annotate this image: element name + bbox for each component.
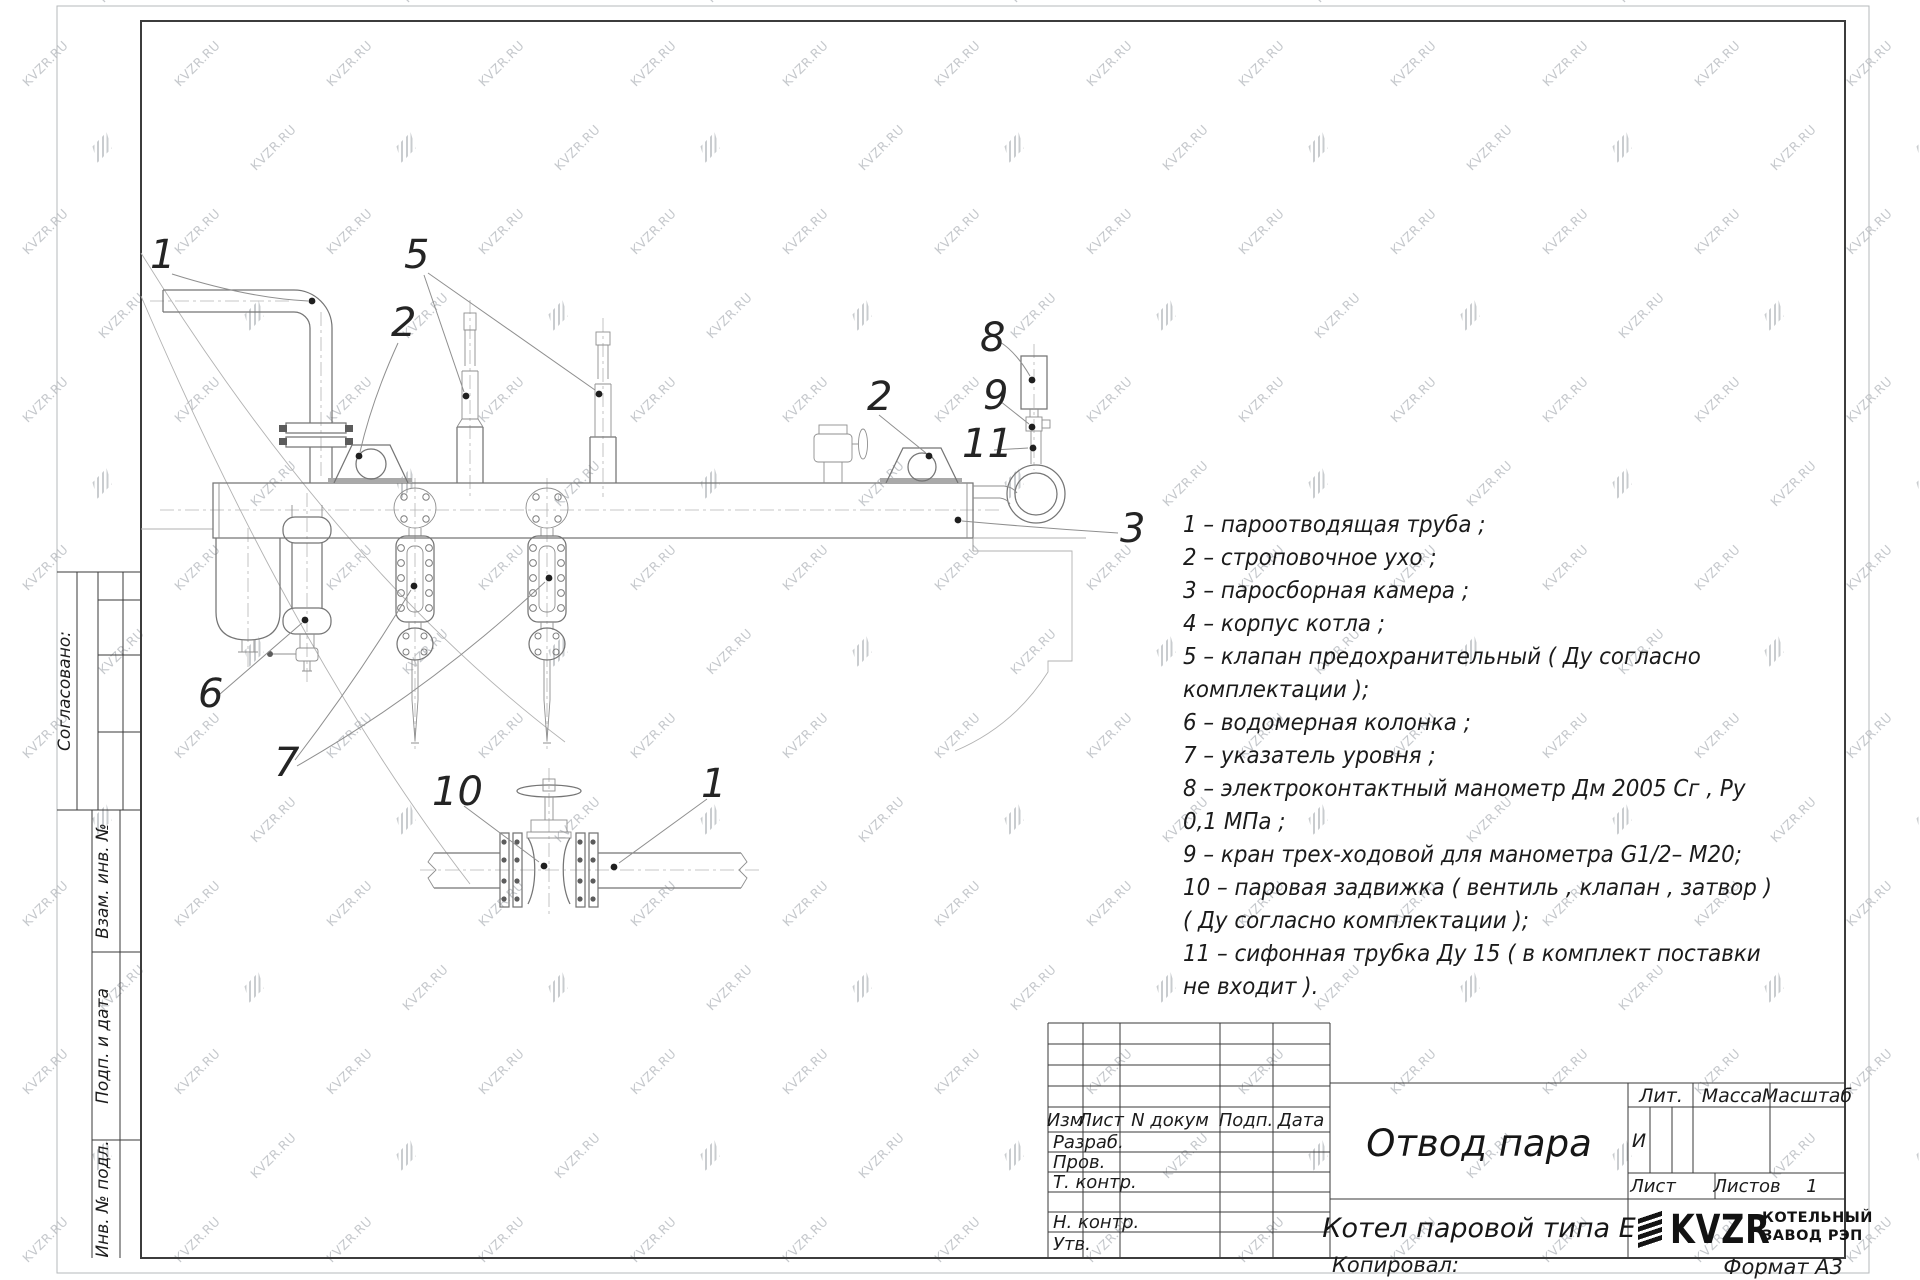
callout-water-column: 6 [198,671,223,717]
callout-pipe-bottom: 1 [701,761,726,807]
callout-gauge: 8 [980,315,1005,361]
parts-list-line: 3 – паросборная камера ; [1183,575,1772,608]
parts-list-line: не входит ). [1183,971,1772,1004]
boiler-shell-outline [955,538,1086,751]
rev-header-ndoc: N докум [1131,1110,1209,1131]
left-strip: Согласовано: Взам. инв. № Подп. и дата И… [55,572,141,1258]
construction-arcs [141,253,565,884]
format-label: Формат А3 [1723,1255,1843,1279]
parts-list-line: 11 – сифонная трубка Ду 15 ( в комплект … [1183,938,1772,971]
rev-header-podp: Подп. [1219,1110,1273,1131]
kvzr-logo-line2: ЗАВОД РЭП [1762,1228,1863,1244]
sheet-label: Лист [1629,1176,1676,1197]
parts-list-line: 9 – кран трех-ходовой для манометра G1/2… [1183,839,1772,872]
callout-safety-valve: 5 [404,232,429,278]
parts-list-line: 6 – водомерная колонка ; [1183,707,1772,740]
parts-list-line: комплектации ); [1183,674,1772,707]
callout-lug-left: 2 [391,300,416,346]
callout-level-indicator: 7 [274,740,300,786]
sheets-label: Листов [1712,1176,1780,1197]
drawing-subtitle: Котел паровой типа Е [1322,1213,1635,1244]
left-strip-label-inv: Инв. № подл. [93,1140,113,1257]
copied-label: Копировал: [1332,1253,1459,1277]
left-strip-label-agreed: Согласовано: [55,631,75,751]
lit-header: Лит. [1638,1085,1683,1107]
kvzr-logo: KVZR КОТЕЛЬНЫЙ ЗАВОД РЭП [1638,1205,1873,1252]
steam-chamber-drum [213,483,973,551]
parts-list-line: 4 – корпус котла ; [1183,608,1772,641]
drum-top-valve [814,425,868,483]
row-utv: Утв. [1053,1234,1091,1255]
parts-list: 1 – пароотводящая труба ;2 – строповочно… [1183,509,1772,1004]
lifting-lug-left [328,445,412,483]
row-razrab: Разраб. [1053,1132,1124,1153]
left-strip-label-vzam: Взам. инв. № [93,823,113,938]
rev-header-date: Дата [1277,1110,1325,1131]
callout-pipe-top: 1 [150,232,175,278]
parts-list-line: ( Ду согласно комплектации ); [1183,905,1772,938]
rev-header-list: Лист [1077,1110,1124,1131]
callout-chamber: 3 [1120,506,1145,552]
parts-list-line: 0,1 МПа ; [1183,806,1772,839]
masshtab-header: Масштаб [1762,1085,1853,1107]
row-prov: Пров. [1053,1152,1105,1173]
parts-list-line: 5 – клапан предохранительный ( Ду соглас… [1183,641,1772,674]
kvzr-logo-mark-icon [1638,1211,1662,1248]
drawing-title: Отвод пара [1366,1122,1592,1165]
water-gauge-column [267,505,331,671]
massa-header: Масса [1702,1085,1763,1107]
callout-leaders [172,273,1118,870]
callout-siphon: 11 [962,421,1013,467]
row-nkontr: Н. контр. [1053,1212,1139,1233]
sheets-value: 1 [1806,1176,1817,1197]
callout-three-way-valve: 9 [983,373,1008,419]
lit-value: И [1632,1130,1646,1152]
parts-list-line: 2 – строповочное ухо ; [1183,542,1772,575]
centerlines [150,300,1034,915]
lifting-lug-right [880,448,962,483]
row-tkontr: Т. контр. [1053,1172,1137,1193]
steam-pipe [163,290,353,483]
parts-list-line: 7 – указатель уровня ; [1183,740,1772,773]
drawing-sheet: KVZR.RUKVZR.RUKVZR.RUKVZR.RUKVZR.RUKVZR.… [0,0,1920,1280]
callout-lug-right: 2 [867,374,892,420]
callout-steam-valve: 10 [432,769,483,815]
parts-list-line: 1 – пароотводящая труба ; [1183,509,1772,542]
left-strip-label-podp: Подп. и дата [93,988,113,1104]
parts-list-line: 10 – паровая задвижка ( вентиль , клапан… [1183,872,1772,905]
parts-list-line: 8 – электроконтактный манометр Дм 2005 С… [1183,773,1772,806]
title-block: Изм Лист N докум Подп. Дата Разраб. Пров… [1047,1023,1873,1279]
kvzr-logo-name: KVZR [1670,1205,1771,1252]
kvzr-logo-line1: КОТЕЛЬНЫЙ [1762,1209,1873,1226]
